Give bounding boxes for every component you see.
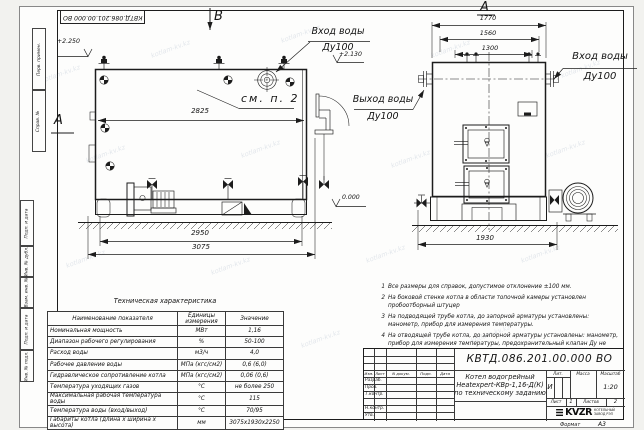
tech-header-units: Единицы измерения [178,312,226,326]
table-row: Номинальная мощностьМВт1,16 [48,326,284,337]
row-razrab: Разраб. [365,379,382,383]
tech-cell: мм [178,417,226,430]
list-label: Лист [546,400,566,404]
stamp-text: КВТД.086.201.00.000 ВО [63,14,143,21]
tech-cell: МПа (кгс/см2) [178,370,226,381]
inlet-label-front-dn: Ду100 [562,72,638,82]
kvzr-logo-text: KVZR [565,407,592,418]
dim-3075: 3075 [171,244,231,251]
view-label-b: В [214,10,223,23]
datum-markers [100,76,294,170]
tech-cell: Температура воды (вход/выход) [48,406,178,417]
row-utv: Утв. [365,414,374,418]
doc-number: КВТД.086.201.00.000 ВО [454,354,625,365]
note-text: Все размеры для справок, допустимое откл… [388,283,621,292]
tech-cell: 3075х1930х2250 [226,417,284,430]
margin-cell-podp-data-1: Подп. и дата [20,200,34,246]
tb-line [364,412,454,413]
tb-line [364,363,454,364]
masshtab-label: Масштаб [596,372,625,376]
massa-label: Масса [570,372,596,376]
tech-cell: Расход воды [48,348,178,359]
col-doc: N докум. [386,372,416,376]
row-prov: Пров. [365,386,378,390]
margin-label: Справ. № [37,110,42,131]
listov-value: 2 [606,400,625,405]
dim-2825: 2825 [170,108,230,115]
outlet-pipe [315,94,349,189]
tech-cell: °С [178,381,226,392]
tb-line [436,349,437,421]
table-row: Максимальная рабочая температура воды°С1… [48,393,284,406]
elevation-2250: +2.250 [57,39,80,45]
margin-cell-inv-dubl: Инв. № дубл. [20,246,34,277]
front-fan [549,183,596,221]
outlet-label-dn: Ду100 [351,112,415,122]
company-logo-cell: KVZR КОТЕЛЬНЫЙ ЗАВОД РЭП [546,406,625,419]
front-base [431,197,547,221]
tech-cell: 0,6 (6,0) [226,359,284,370]
lit-value: И [546,384,554,391]
inlet-flange [254,67,280,93]
dim-1300: 1300 [462,45,518,52]
margin-label: Подп. и дата [25,208,30,238]
view-arrow-label-a-side: А [54,114,63,127]
margin-cell-sprav-no: Справ. № [32,90,46,152]
note-text: На подводящей трубе котла, до запорной а… [388,313,621,330]
tech-cell: Габариты котла (длина х ширина х высота) [48,417,178,430]
doc-title-line2: Heatexpert-КВр-1,16-Д(К) [454,382,546,389]
dim-1560: 1560 [460,30,516,37]
tb-line [454,401,546,402]
note-number: 3 [378,313,385,330]
drawing-sheet: kotlam-kv.kz kotlam-kv.kz kotlam-kv.kz k… [0,0,644,430]
margin-cell-podp-data-2: Подп. и дата [20,308,34,350]
tech-cell: Диапазон рабочего регулирования [48,337,178,348]
tech-cell: °С [178,406,226,417]
format-label: Формат [560,422,580,428]
table-row: Температура уходящих газов°Сне более 250 [48,381,284,392]
side-dimensions [88,138,315,259]
table-row: Диапазон рабочего регулирования%50-100 [48,337,284,348]
table-row: Рабочее давление водыМПа (кгс/см2)0,6 (6… [48,359,284,370]
tech-cell: Максимальная рабочая температура воды [48,393,178,406]
tb-line [364,356,454,357]
tech-header-value: Значение [226,312,284,326]
damper-box [222,202,252,215]
elevation-0000: 0.000 [342,195,360,201]
upper-door [454,125,509,163]
inlet-label-side-line1: Вход воды [306,27,370,37]
margin-cell-perv-primen: Перв. примен. [32,28,46,90]
tech-header-row: Наименование показателя Единицы измерени… [48,312,284,326]
company-name: КОТЕЛЬНЫЙ ЗАВОД РЭП [594,409,615,416]
tech-cell: 4,0 [226,348,284,359]
col-data: Дата [436,372,454,376]
tb-line [416,349,417,421]
row-tkontr: Т.контр. [365,393,384,397]
doc-title-line3: по техническому заданию [454,390,546,397]
tech-cell: 1,16 [226,326,284,337]
front-lugs [464,52,541,62]
note-number: 1 [378,283,385,292]
tech-cell: °С [178,393,226,406]
masshtab-value: 1:20 [596,384,625,391]
tech-table-title: Техническая характеристика [47,297,283,305]
elevation-2130: +2.130 [339,52,362,58]
margin-label: Инв. № дубл. [25,246,30,276]
note-number: 2 [378,294,385,311]
tech-cell: Гидравлическое сопротивление котла [48,370,178,381]
dim-2950: 2950 [170,230,230,237]
list-value: 1 [566,400,576,405]
margin-label: Подп. и дата [25,314,30,344]
tech-cell: 115 [226,393,284,406]
outlet-label-line1: Выход воды [351,95,415,105]
kvzr-logo-icon [556,409,563,416]
row-nkontr: Н.контр. [365,407,384,411]
col-podp: Подп. [416,372,436,376]
tech-cell: 70/95 [226,406,284,417]
format-value: А3 [598,421,606,428]
listov-label: Листов [576,400,606,404]
note-reference: см. п. 2 [241,93,300,104]
margin-label: Инв. № подл. [25,351,30,381]
tech-cell: МВт [178,326,226,337]
tech-cell: % [178,337,226,348]
title-block: КВТД.086.201.00.000 ВО Изм. Лист N докум… [363,348,624,420]
tech-cell: Температура уходящих газов [48,381,178,392]
margin-cell-vzam-inv: Взам. инв. № [20,277,34,308]
tech-cell: не более 250 [226,381,284,392]
tb-line [554,377,555,398]
lit-label: Лит. [546,372,570,376]
tech-cell: Номинальная мощность [48,326,178,337]
note-item: 3На подводящей трубе котла, до запорной … [378,313,621,330]
front-left-valve [414,195,430,208]
margin-label: Взам. инв. № [25,278,30,308]
tech-cell: МПа (кгс/см2) [178,359,226,370]
tb-line [546,377,570,378]
doc-title-line1: Котел водогрейный [454,374,546,381]
col-list: Лист [374,372,386,376]
company-name-line2: ЗАВОД РЭП [594,413,615,417]
rotated-designation-stamp: КВТД.086.201.00.000 ВО [60,10,145,24]
tech-cell: м3/ч [178,348,226,359]
table-row: Гидравлическое сопротивление котлаМПа (к… [48,370,284,381]
margin-label: Перв. примен. [37,43,42,76]
skid-valves [147,176,308,200]
tech-table: Наименование показателя Единицы измерени… [47,311,284,430]
view-label-a-front: А [480,1,489,14]
tech-cell: 0,06 (0,6) [226,370,284,381]
dim-1770: 1770 [460,15,516,22]
table-row: Температура воды (вход/выход)°С70/95 [48,406,284,417]
tb-line [562,377,563,398]
tech-cell: 50-100 [226,337,284,348]
col-izm: Изм. [364,372,374,376]
inlet-label-front-line1: Вход воды [562,52,638,62]
margin-cell-inv-podl: Инв. № подл. [20,350,34,382]
tech-cell: Рабочее давление воды [48,359,178,370]
tb-line [386,349,387,421]
table-row: Расход водым3/ч4,0 [48,348,284,359]
note-item: 1Все размеры для справок, допустимое отк… [378,283,621,292]
tb-line [364,398,454,399]
note-item: 2На боковой стенке котла в области топоч… [378,294,621,311]
table-row: Габариты котла (длина х ширина х высота)… [48,417,284,430]
dim-1930: 1930 [455,235,515,242]
note-text: На боковой стенке котла в области топочн… [388,294,621,311]
top-fitting [99,56,290,70]
tech-header-name: Наименование показателя [48,312,178,326]
